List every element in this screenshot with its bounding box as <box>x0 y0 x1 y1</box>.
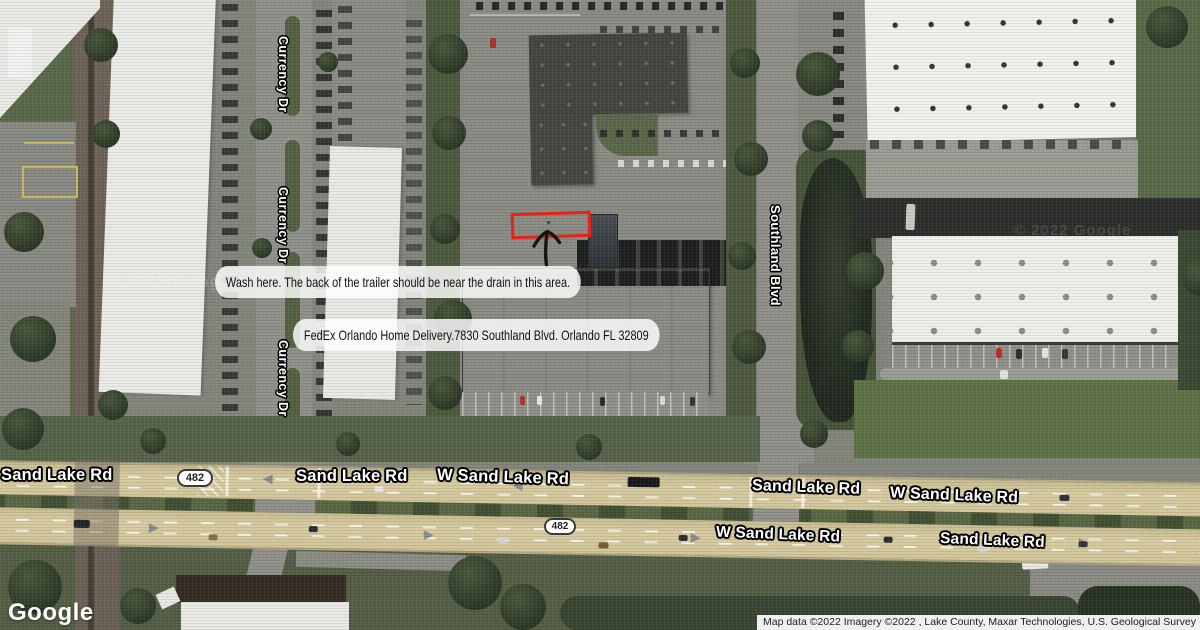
tree <box>98 390 128 420</box>
google-watermark: © 2022 Google <box>1014 222 1131 239</box>
dark-car <box>1016 349 1022 359</box>
map-canvas[interactable]: © 2022 Google © 2022 Google Wash here. T… <box>0 0 1200 630</box>
parked-cars-row <box>600 26 730 33</box>
white-car <box>1000 370 1008 379</box>
tree <box>84 28 118 62</box>
parked-cars-row <box>476 2 726 10</box>
truck <box>74 520 90 528</box>
tree <box>92 120 120 148</box>
terrain-grass-roadside <box>0 416 760 462</box>
tree <box>732 330 766 364</box>
attribution-text: Map data ©2022 Imagery ©2022 , Lake Coun… <box>757 615 1200 630</box>
tree <box>802 120 834 152</box>
dark-car <box>600 397 605 406</box>
semi-truck <box>628 477 660 488</box>
traffic-arrow-left <box>263 474 273 484</box>
road-label-sand-lake-rd-upper-center: Sand Lake Rd <box>296 467 408 486</box>
car <box>679 535 688 541</box>
parked-cars-row <box>600 130 738 137</box>
car <box>884 537 893 543</box>
car <box>1079 541 1088 547</box>
dark-roof-building-south <box>176 575 346 603</box>
car <box>1059 495 1069 501</box>
terrain-tree-strip <box>1178 230 1200 390</box>
median-gap-currency <box>255 499 315 513</box>
street-label-currency-dr-2: Currency Dr <box>276 187 290 264</box>
parking-lot-far-left <box>0 122 76 307</box>
tree <box>730 48 760 78</box>
traffic-arrow-right <box>424 530 434 540</box>
tree <box>796 52 840 96</box>
office-building-leg <box>530 112 593 185</box>
car <box>598 542 608 548</box>
crosswalk <box>225 467 229 497</box>
tree <box>10 316 56 362</box>
tree <box>842 330 874 362</box>
tree <box>252 238 272 258</box>
street-label-currency-dr-3: Currency Dr <box>276 340 290 417</box>
google-logo[interactable]: Google <box>8 599 94 627</box>
tree <box>428 34 468 74</box>
tree <box>846 252 884 290</box>
tree <box>1146 6 1188 48</box>
median-gap-southland <box>753 508 799 522</box>
white-truck <box>906 204 916 230</box>
car <box>209 534 218 540</box>
tree <box>448 556 502 610</box>
traffic-arrow-right <box>691 533 701 543</box>
dark-car <box>690 397 695 406</box>
red-car <box>490 38 496 48</box>
warehouse-roof-topright <box>864 0 1139 143</box>
container-stack <box>588 214 618 268</box>
tree <box>140 428 166 454</box>
tree <box>4 212 44 252</box>
tree <box>120 588 156 624</box>
street-label-currency-dr-1: Currency Dr <box>276 36 290 113</box>
car <box>499 538 508 544</box>
tree <box>800 420 828 448</box>
tree <box>318 52 338 72</box>
tree <box>576 434 602 460</box>
tree <box>500 584 546 630</box>
road-label-sand-lake-rd-upper-east: Sand Lake Rd <box>752 477 861 499</box>
tree <box>2 408 44 450</box>
red-car <box>520 396 525 405</box>
traffic-arrow-right <box>149 523 159 533</box>
parked-cars-row <box>338 6 352 144</box>
white-car <box>537 396 542 405</box>
white-roof-building-south <box>181 602 349 630</box>
tree <box>432 116 466 150</box>
car <box>374 486 383 492</box>
sports-field <box>854 380 1200 458</box>
tree <box>728 242 756 270</box>
white-car <box>660 396 665 405</box>
red-car <box>996 348 1002 358</box>
address-note-label: FedEx Orlando Home Delivery.7830 Southla… <box>293 319 660 351</box>
parking-lot <box>892 345 1182 370</box>
route-shield-482-upper: 482 <box>177 469 213 487</box>
wash-note-label: Wash here. The back of the trailer shoul… <box>215 266 581 298</box>
parked-cars-row <box>222 4 238 434</box>
tree <box>734 142 768 176</box>
tree <box>428 376 462 410</box>
tree <box>430 214 460 244</box>
stall-lines <box>470 14 580 16</box>
street-label-southland-blvd: Southland Blvd <box>768 205 783 306</box>
yellow-stall-marking <box>22 166 78 198</box>
car <box>309 526 318 532</box>
white-car <box>1042 348 1048 358</box>
office-building-bar <box>529 33 688 116</box>
dark-car <box>1062 349 1068 359</box>
red-highlight-box <box>511 211 592 240</box>
driveway <box>880 368 1190 380</box>
road-label-sand-lake-rd-west: Sand Lake Rd <box>1 466 113 485</box>
route-shield-482-lower: 482 <box>544 518 576 535</box>
tree <box>336 432 360 456</box>
tree <box>250 118 272 140</box>
warehouse-roof-right-middle <box>892 236 1178 345</box>
yellow-stall-line <box>24 142 74 144</box>
dock-doors <box>870 140 1134 149</box>
warehouse-roof-left <box>99 0 216 396</box>
parked-cars-row <box>618 160 736 167</box>
small-white-building <box>8 28 33 78</box>
